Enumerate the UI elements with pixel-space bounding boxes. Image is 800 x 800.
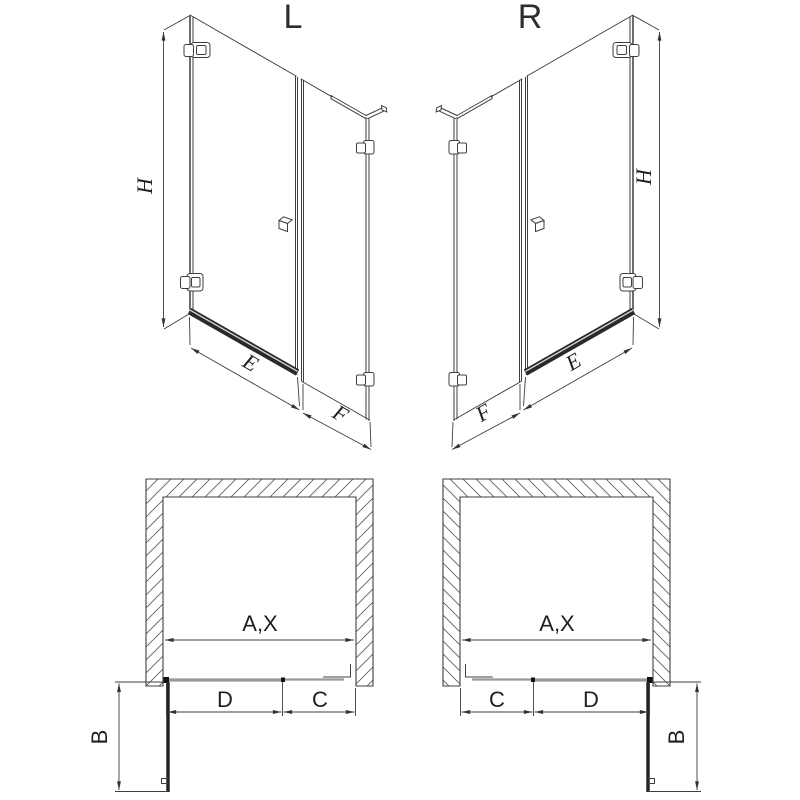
height-label-left: H bbox=[132, 177, 157, 195]
panel-width-label-right: F bbox=[470, 398, 495, 427]
door-projection-label-left: B bbox=[87, 730, 112, 745]
wall-hatch bbox=[146, 479, 373, 686]
variant-label-left: L bbox=[284, 0, 303, 36]
support-bar bbox=[331, 96, 387, 119]
hinge-bottom bbox=[181, 274, 204, 292]
door-segment-label-left: D bbox=[217, 687, 233, 712]
technical-drawing-page: L R H H E E F F A,X A,X D C C D B B bbox=[0, 0, 800, 800]
panel-wall-clamp-bottom bbox=[357, 373, 375, 387]
elevation-right bbox=[436, 15, 659, 450]
opening-width-label-right: A,X bbox=[539, 611, 575, 636]
wall-profile bbox=[324, 665, 351, 678]
panel-segment-label-right: C bbox=[489, 687, 505, 712]
hinge-top bbox=[184, 43, 210, 58]
opening-width-label-left: A,X bbox=[242, 611, 278, 636]
panel-width-label-left: F bbox=[328, 399, 353, 428]
panel-segment-label-left: C bbox=[312, 687, 328, 712]
door-width-label-left: E bbox=[238, 348, 263, 377]
wall-anchor-end bbox=[382, 106, 387, 112]
variant-label-right: R bbox=[518, 0, 543, 36]
door-projection-dimension bbox=[115, 682, 170, 792]
door-handle bbox=[279, 217, 292, 232]
door-width-label-right: E bbox=[560, 347, 585, 376]
panel-joint-node bbox=[281, 678, 285, 683]
fixed-panel bbox=[301, 79, 370, 421]
elevation-left bbox=[164, 15, 387, 450]
door-segment-label-right: D bbox=[583, 687, 599, 712]
height-label-right: H bbox=[631, 168, 656, 186]
panel-wall-clamp-top bbox=[357, 141, 375, 155]
door-projection-label-right: B bbox=[664, 730, 689, 745]
shower-enclosure-diagram: L R H H E E F F A,X A,X D C C D B B bbox=[0, 0, 800, 800]
